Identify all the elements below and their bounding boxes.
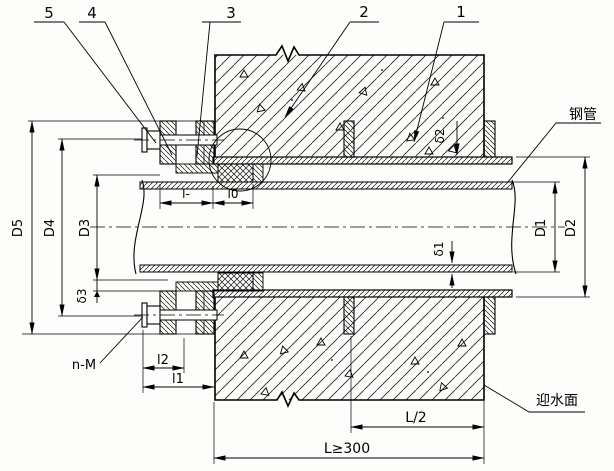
dim-D4: D4 [43,219,58,237]
dim-l: l- [182,187,190,201]
label-water-facing-side: 迎水面 [536,393,578,409]
dim-D1: D1 [534,219,549,237]
callout-4: 4 [87,4,97,22]
dim-L-half: L/2 [405,410,426,426]
dim-delta3: δ3 [75,289,89,304]
waterproof-sleeve-section-drawing: 5 4 3 2 1 D5 D4 D3 δ3 l- l0 l2 l1 n-M δ2… [0,0,614,471]
callout-1: 1 [456,3,466,21]
dim-n-M: n-M [72,358,96,373]
callout-3: 3 [226,4,236,22]
dim-D2: D2 [564,219,579,237]
dim-D5: D5 [11,219,26,237]
dim-l2: l2 [157,353,169,368]
dim-D3: D3 [78,219,93,237]
callout-2: 2 [359,3,369,21]
label-steel-pipe: 钢管 [569,107,597,123]
engineering-drawing-canvas: 5 4 3 2 1 D5 D4 D3 δ3 l- l0 l2 l1 n-M δ2… [0,0,614,471]
dim-delta1: δ1 [432,242,446,257]
dim-l1: l1 [172,372,184,387]
dim-delta2: δ2 [433,129,447,144]
gland-flange-assembly-bottom [142,291,217,334]
dim-L-min: L≥300 [324,441,370,457]
gland-flange-assembly-top [142,121,217,164]
callout-5: 5 [44,4,54,22]
dim-l0: l0 [228,187,239,201]
